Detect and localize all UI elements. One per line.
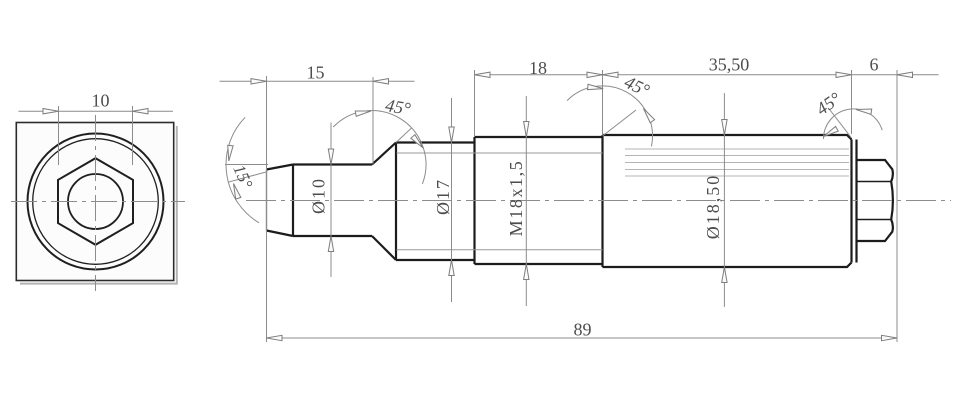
svg-text:45°: 45° — [812, 88, 844, 119]
svg-text:35,50: 35,50 — [709, 54, 750, 74]
svg-text:45°: 45° — [384, 95, 412, 119]
svg-text:89: 89 — [574, 320, 592, 340]
svg-text:Ø17: Ø17 — [433, 178, 453, 215]
svg-text:10: 10 — [92, 91, 110, 111]
svg-text:15: 15 — [307, 62, 325, 82]
svg-text:18: 18 — [529, 58, 547, 78]
svg-text:15°: 15° — [229, 162, 256, 192]
svg-text:6: 6 — [870, 54, 879, 74]
svg-text:M18x1,5: M18x1,5 — [506, 160, 526, 237]
svg-text:Ø18,50: Ø18,50 — [703, 174, 723, 240]
svg-text:Ø10: Ø10 — [309, 177, 329, 214]
svg-text:45°: 45° — [621, 72, 652, 101]
